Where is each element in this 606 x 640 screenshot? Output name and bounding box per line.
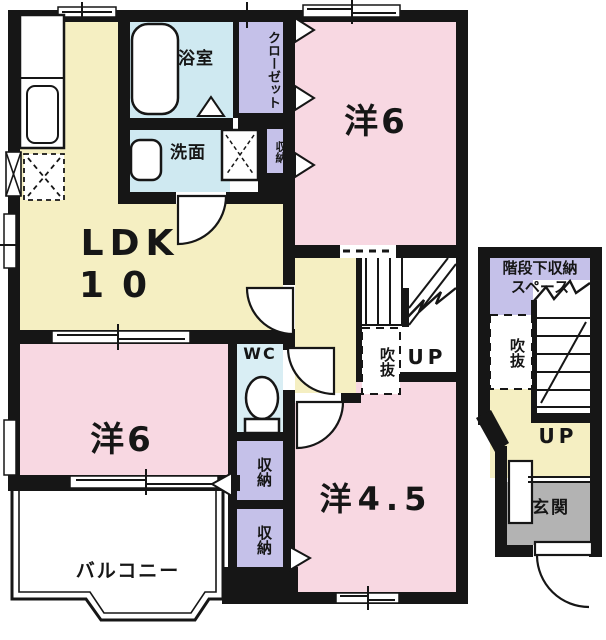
- label-entrance: 玄関: [514, 499, 588, 518]
- label-void-main: 吹抜: [367, 333, 395, 391]
- label-storage-bottom: 収納: [248, 512, 272, 568]
- label-storage-mid: 収納: [248, 444, 272, 500]
- label-western-bottom: 洋6: [62, 422, 182, 459]
- label-washroom: 洗面: [170, 144, 206, 163]
- label-up-annex: UP: [528, 425, 588, 447]
- floor-plan-drawing: [0, 0, 606, 640]
- label-storage-top: 収納: [266, 130, 286, 174]
- label-understairs-2: スペース: [488, 279, 592, 296]
- pipe-space: [6, 152, 21, 196]
- kitchen-counter: [20, 15, 64, 148]
- entrance-door: [535, 542, 592, 607]
- label-ldk-size: 10: [52, 266, 192, 306]
- label-up-main: UP: [400, 346, 454, 368]
- label-balcony: バルコニー: [48, 561, 208, 582]
- label-understairs-1: 階段下収納: [488, 260, 592, 277]
- label-void-annex: 吹抜: [497, 324, 525, 382]
- washing-machine-pan: [222, 130, 258, 180]
- entrance-step-lines: [528, 477, 590, 482]
- label-closet: クローゼット: [241, 29, 281, 111]
- label-bath: 浴室: [178, 50, 214, 69]
- washbasin: [131, 140, 161, 180]
- balcony-outline: [12, 489, 223, 620]
- floor-plan: LDK 10 洋6 洋6 洋4.5 浴室 洗面 WC バルコニー 玄関 UP U…: [0, 0, 606, 640]
- label-western-45: 洋4.5: [300, 482, 452, 517]
- refrigerator-space: [24, 154, 64, 200]
- bathtub: [132, 24, 178, 114]
- label-ldk: LDK: [60, 224, 200, 264]
- toilet: [245, 377, 279, 433]
- label-western-top: 洋6: [320, 104, 432, 141]
- label-wc: WC: [235, 345, 285, 363]
